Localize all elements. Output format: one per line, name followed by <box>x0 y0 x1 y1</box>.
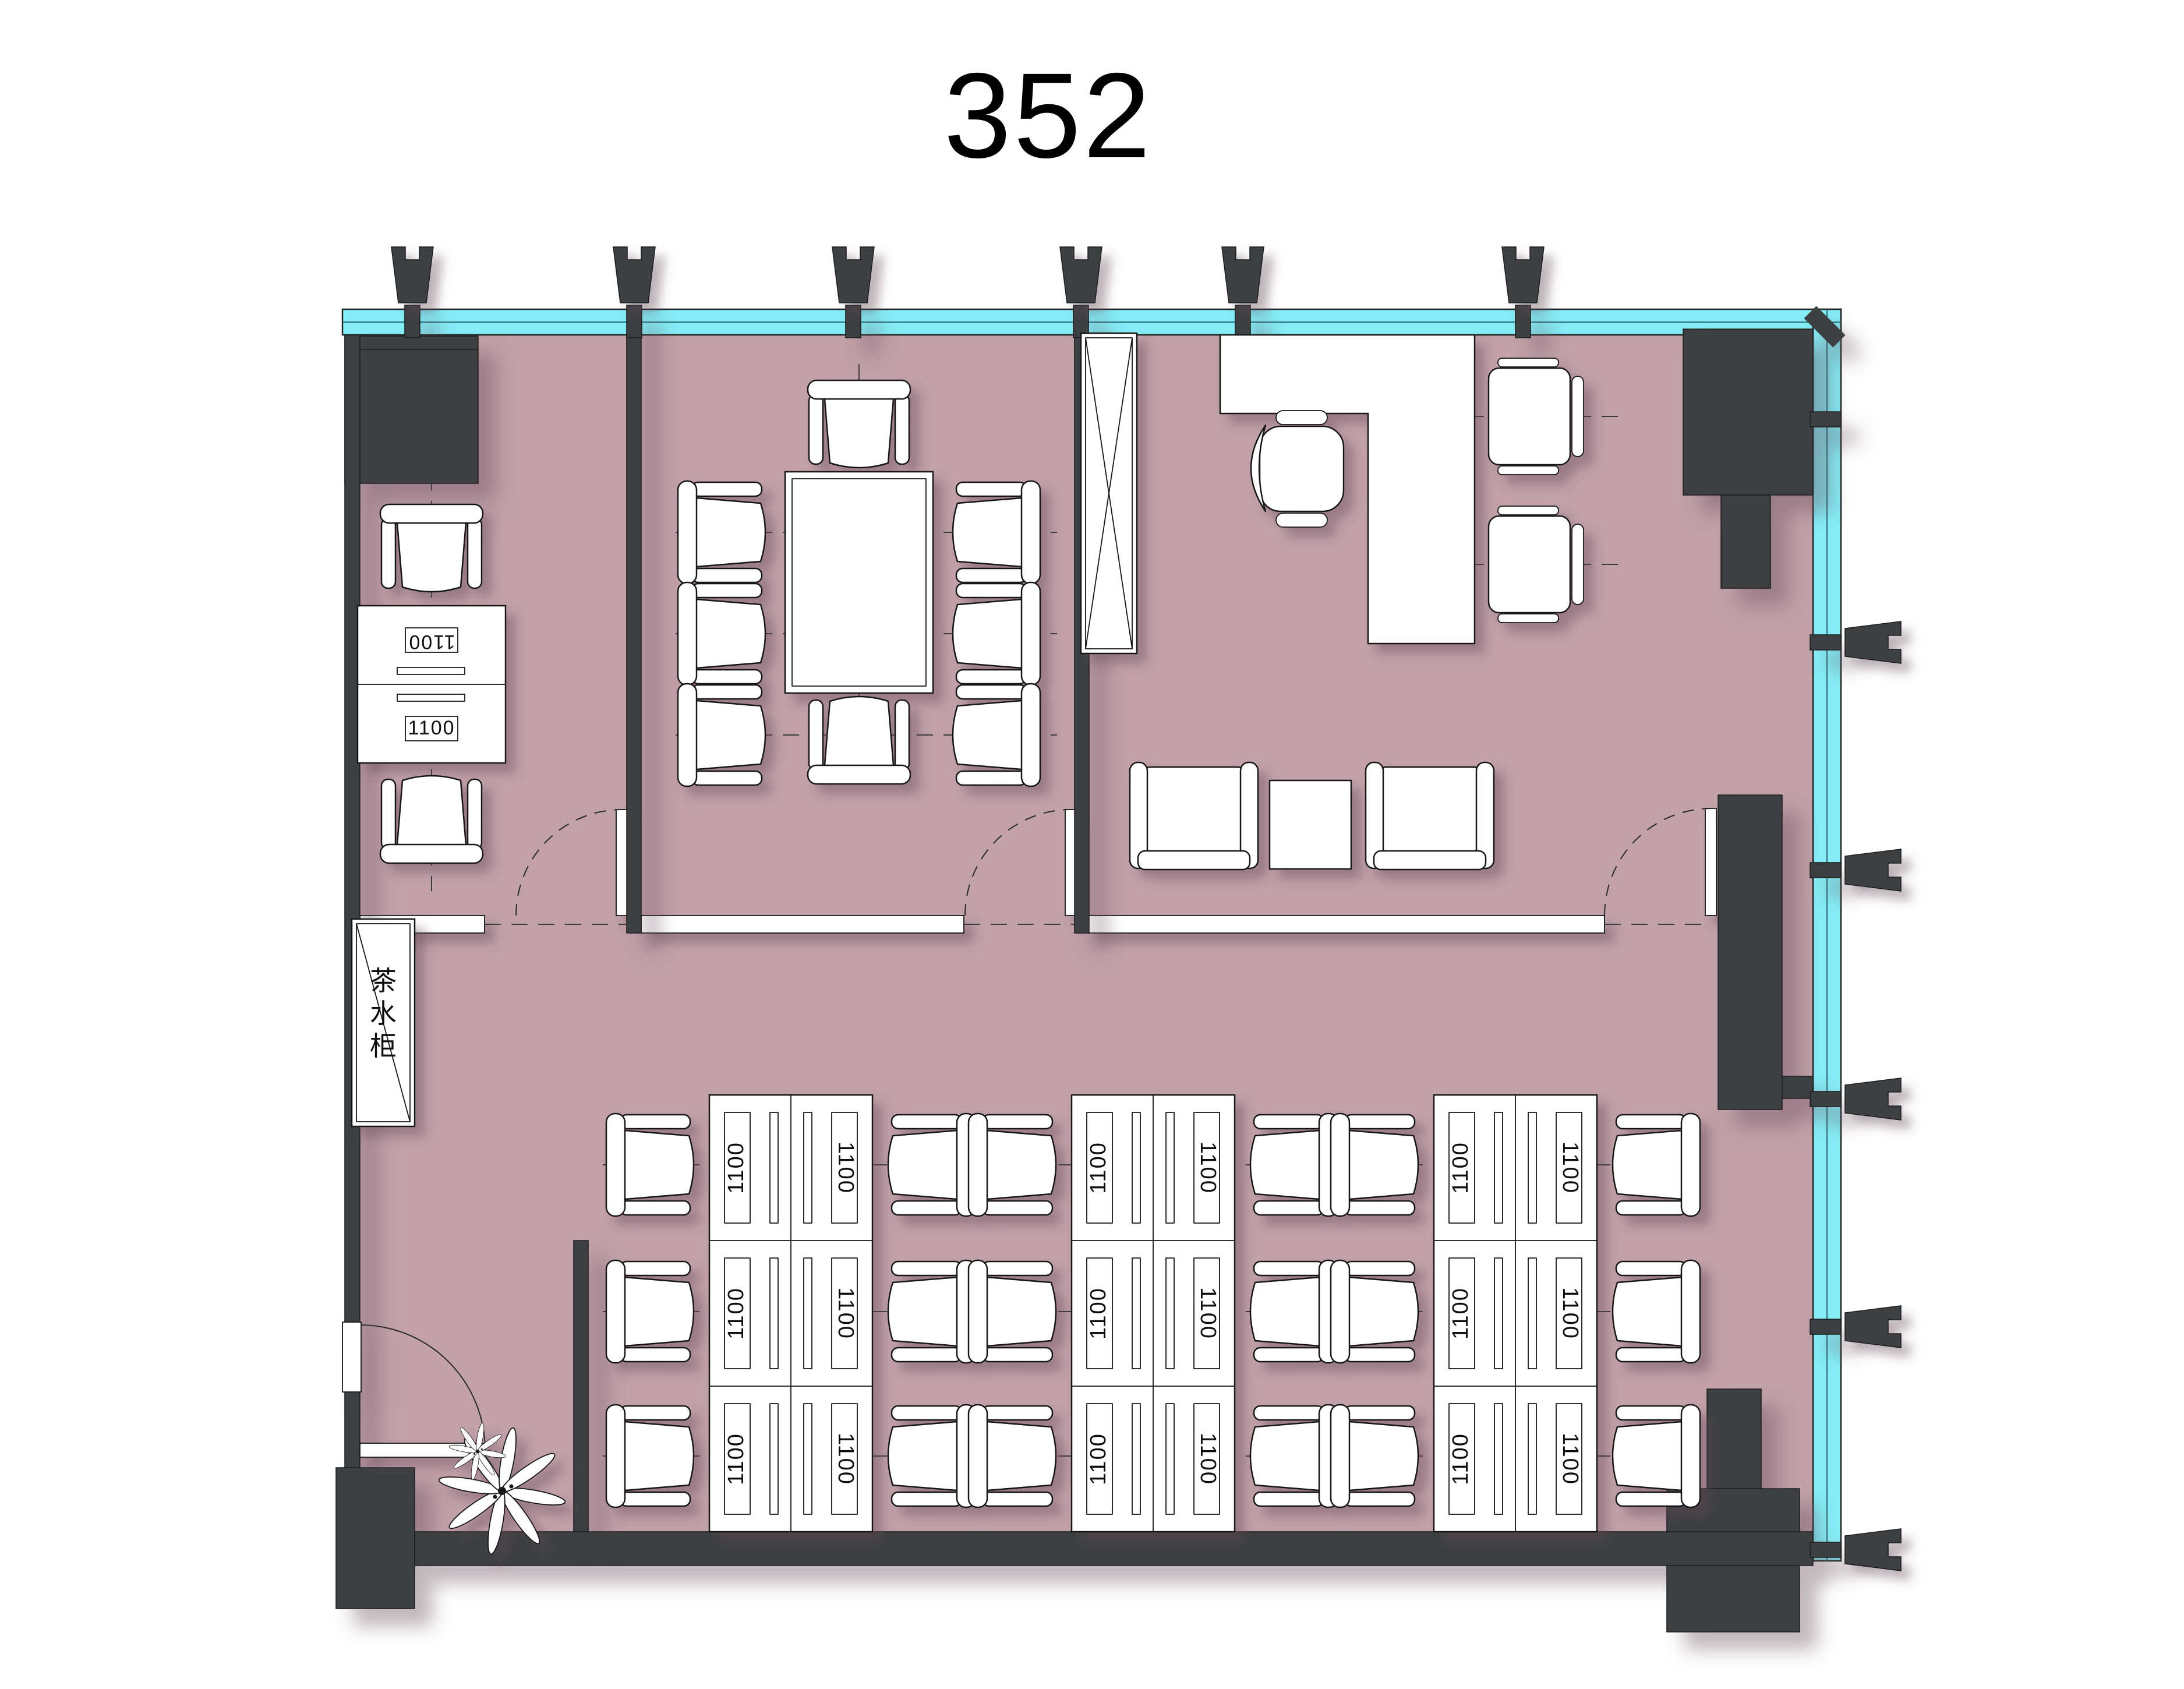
facade-clip-icon <box>1502 247 1544 303</box>
svg-text:茶: 茶 <box>370 966 397 996</box>
office-chair <box>888 1260 976 1363</box>
meeting-chair <box>678 684 765 786</box>
column-top-right-stem <box>1721 495 1770 588</box>
office-chair <box>1331 1260 1418 1363</box>
office-chair <box>969 1260 1056 1363</box>
office-chair <box>606 1260 694 1363</box>
office-chair <box>1250 1405 1338 1507</box>
facade-clip-icon <box>1845 849 1901 891</box>
window-mullion <box>1235 305 1250 338</box>
office-chair <box>1331 1114 1418 1216</box>
meeting-chair <box>953 684 1040 786</box>
svg-text:水: 水 <box>370 998 397 1029</box>
meeting-chair <box>678 481 765 584</box>
window-transom <box>1810 635 1841 650</box>
svg-text:1100: 1100 <box>408 717 455 739</box>
side-desk-pair: 1100 1100 <box>358 606 506 763</box>
facade-clip-icon <box>1845 1306 1901 1348</box>
door-leaf <box>1705 808 1716 916</box>
office-chair <box>969 1405 1056 1507</box>
office-chair <box>1613 1405 1700 1507</box>
facade-clip-icon <box>1060 247 1102 303</box>
svg-text:1100: 1100 <box>408 631 455 653</box>
office-chair <box>606 1114 694 1216</box>
desk-cluster-1 <box>709 1095 872 1532</box>
window-mullion <box>1515 305 1531 338</box>
meeting-chair <box>953 582 1040 685</box>
wall-right-connector <box>1782 1076 1813 1098</box>
desk-cluster-2 <box>1072 1095 1235 1532</box>
window-mullion <box>627 305 642 338</box>
office-chair <box>888 1405 976 1507</box>
tea-cabinet: 茶 水 柜 <box>352 919 415 1126</box>
column-bottom-right-stem <box>1707 1389 1761 1491</box>
column-bottom-left <box>336 1468 415 1609</box>
facade-clip-icon <box>391 247 433 303</box>
office-chair <box>380 776 483 863</box>
office-chair <box>606 1405 694 1507</box>
meeting-chair <box>808 697 910 784</box>
window-mullion <box>405 305 420 338</box>
window-transom <box>1810 1542 1841 1557</box>
partition-segment <box>1089 916 1605 933</box>
wall-left-upper <box>345 335 360 1322</box>
window-transom <box>1810 863 1841 878</box>
meeting-chair <box>808 380 910 468</box>
meeting-chair <box>953 481 1040 584</box>
partition-wall-1 <box>627 335 641 933</box>
conference-table <box>785 472 933 693</box>
office-chair <box>1613 1114 1700 1216</box>
wall-bottom <box>415 1532 1813 1566</box>
desk-cluster-3 <box>1434 1095 1597 1532</box>
sofa-armchair <box>1130 762 1258 870</box>
sofa-armchair <box>1366 762 1494 870</box>
coffee-table <box>1270 780 1351 869</box>
office-chair <box>380 504 483 592</box>
column-top-right <box>1683 329 1813 495</box>
wall-right-slab <box>1718 795 1782 1109</box>
window-transom <box>1810 1319 1841 1334</box>
facade-clip-icon <box>1845 1529 1901 1571</box>
wall-left-lower <box>345 1392 360 1474</box>
entry-door-jamb <box>342 1322 361 1392</box>
facade-clip-icon <box>1845 621 1901 663</box>
door-leaf <box>616 810 627 916</box>
office-chair <box>1331 1405 1418 1507</box>
column-top-left <box>345 336 478 483</box>
office-chair <box>1250 1114 1338 1216</box>
wardrobe-cabinet <box>1081 333 1137 653</box>
facade-clip-icon <box>613 247 655 303</box>
guest-chair <box>1489 358 1584 475</box>
wall-stub <box>574 1241 588 1532</box>
window-transom <box>1810 1091 1841 1107</box>
office-chair <box>969 1114 1056 1216</box>
meeting-chair <box>678 582 765 685</box>
office-chair <box>1613 1260 1700 1363</box>
facade-clip-icon <box>1845 1078 1901 1120</box>
executive-chair <box>1251 411 1344 527</box>
guest-chair <box>1489 506 1584 623</box>
facade-clip-icon <box>832 247 874 303</box>
office-chair <box>1250 1260 1338 1363</box>
window-mullion <box>846 305 861 338</box>
office-chair <box>888 1114 976 1216</box>
window-transom <box>1810 412 1841 427</box>
partition-segment <box>641 916 964 933</box>
facade-clip-icon <box>1222 247 1264 303</box>
floor-plan: 1100 1100 <box>0 0 2184 1689</box>
svg-text:柜: 柜 <box>370 1031 397 1061</box>
